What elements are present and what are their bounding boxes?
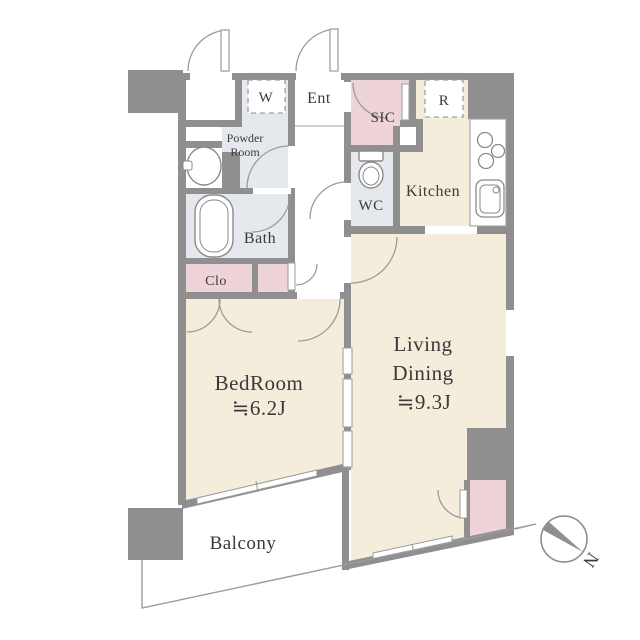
label-powder-line2: Room — [230, 145, 260, 159]
doorway-entrance — [296, 73, 341, 80]
opening-kitchen-pass — [425, 226, 477, 234]
doorway-bedroom — [297, 292, 340, 299]
bathtub-inner — [200, 200, 228, 252]
wall-living-closet-right — [506, 478, 514, 530]
sliding-panel-3 — [343, 431, 352, 467]
pillar-bottom-left — [128, 508, 183, 560]
label-kitchen: Kitchen — [406, 183, 460, 200]
toilet-bowl-inner — [363, 167, 379, 185]
doorway-utility — [190, 73, 232, 80]
hall-closet-floor — [258, 264, 288, 292]
doorway-powder — [288, 146, 295, 188]
label-bedroom-size: ≒6.2J — [232, 396, 287, 420]
window-living-right — [506, 310, 514, 356]
living-closet-floor — [470, 480, 506, 537]
label-living-line2: Dining — [392, 361, 453, 385]
hallway-floor — [295, 80, 344, 292]
stove-burner-3 — [479, 154, 494, 169]
wall-closet-divider — [252, 264, 258, 292]
door-leaf-entrance — [330, 29, 338, 71]
label-living-line1: Living — [394, 332, 453, 356]
door-leaf-living-closet — [460, 490, 467, 518]
floor-plan-image: W Ent SIC R PowderRoom WC Kitchen Bath C… — [0, 0, 640, 640]
door-leaf-hall-closet — [288, 263, 295, 290]
kitchen-faucet — [493, 187, 499, 193]
wall-utility-powder — [235, 73, 242, 127]
label-sic: SIC — [371, 110, 396, 126]
door-leaf-sic — [402, 84, 409, 120]
label-powder-room: PowderRoom — [227, 131, 264, 159]
sliding-panel-1 — [343, 348, 352, 374]
label-balcony: Balcony — [210, 533, 277, 554]
door-leaf-utility — [221, 30, 229, 71]
wall-balcony-living — [342, 466, 349, 570]
cabinet-box — [186, 127, 218, 143]
label-bedroom: BedRoom — [215, 371, 304, 395]
sic-floor-lower — [351, 126, 393, 145]
label-bath: Bath — [244, 230, 276, 247]
wall-bath-bottom — [178, 258, 295, 264]
doorway-sic — [344, 82, 351, 112]
doorway-living — [344, 237, 351, 283]
floor-plan-svg: W Ent SIC R PowderRoom WC Kitchen Bath C… — [0, 0, 640, 640]
entry-niche — [400, 127, 417, 145]
utility-room-floor — [186, 80, 235, 121]
label-living-size: ≒9.3J — [397, 390, 452, 414]
label-wc: WC — [358, 198, 383, 214]
balcony-outline — [142, 524, 536, 608]
wall-right — [506, 73, 514, 433]
stove-burner-1 — [478, 133, 493, 148]
sliding-panel-2 — [343, 379, 352, 427]
label-refrigerator: R — [439, 93, 450, 109]
doorway-bath — [253, 188, 291, 194]
wall-h1 — [178, 120, 242, 127]
label-powder-line1: Powder — [227, 131, 264, 145]
toilet-tank — [359, 151, 383, 161]
pillar-right-middle — [467, 428, 514, 480]
compass: N — [541, 516, 603, 571]
stove-burner-2 — [492, 145, 505, 158]
wall-wc-kitchen — [393, 126, 400, 234]
wall-sic-right — [409, 76, 416, 126]
doorway-wc — [344, 183, 351, 220]
label-closet: Clo — [205, 274, 227, 289]
label-washer: W — [259, 90, 274, 106]
wall-left — [178, 73, 186, 505]
pillar-top-left — [128, 70, 183, 113]
label-entrance: Ent — [307, 90, 331, 107]
washbasin-tap — [183, 161, 192, 170]
